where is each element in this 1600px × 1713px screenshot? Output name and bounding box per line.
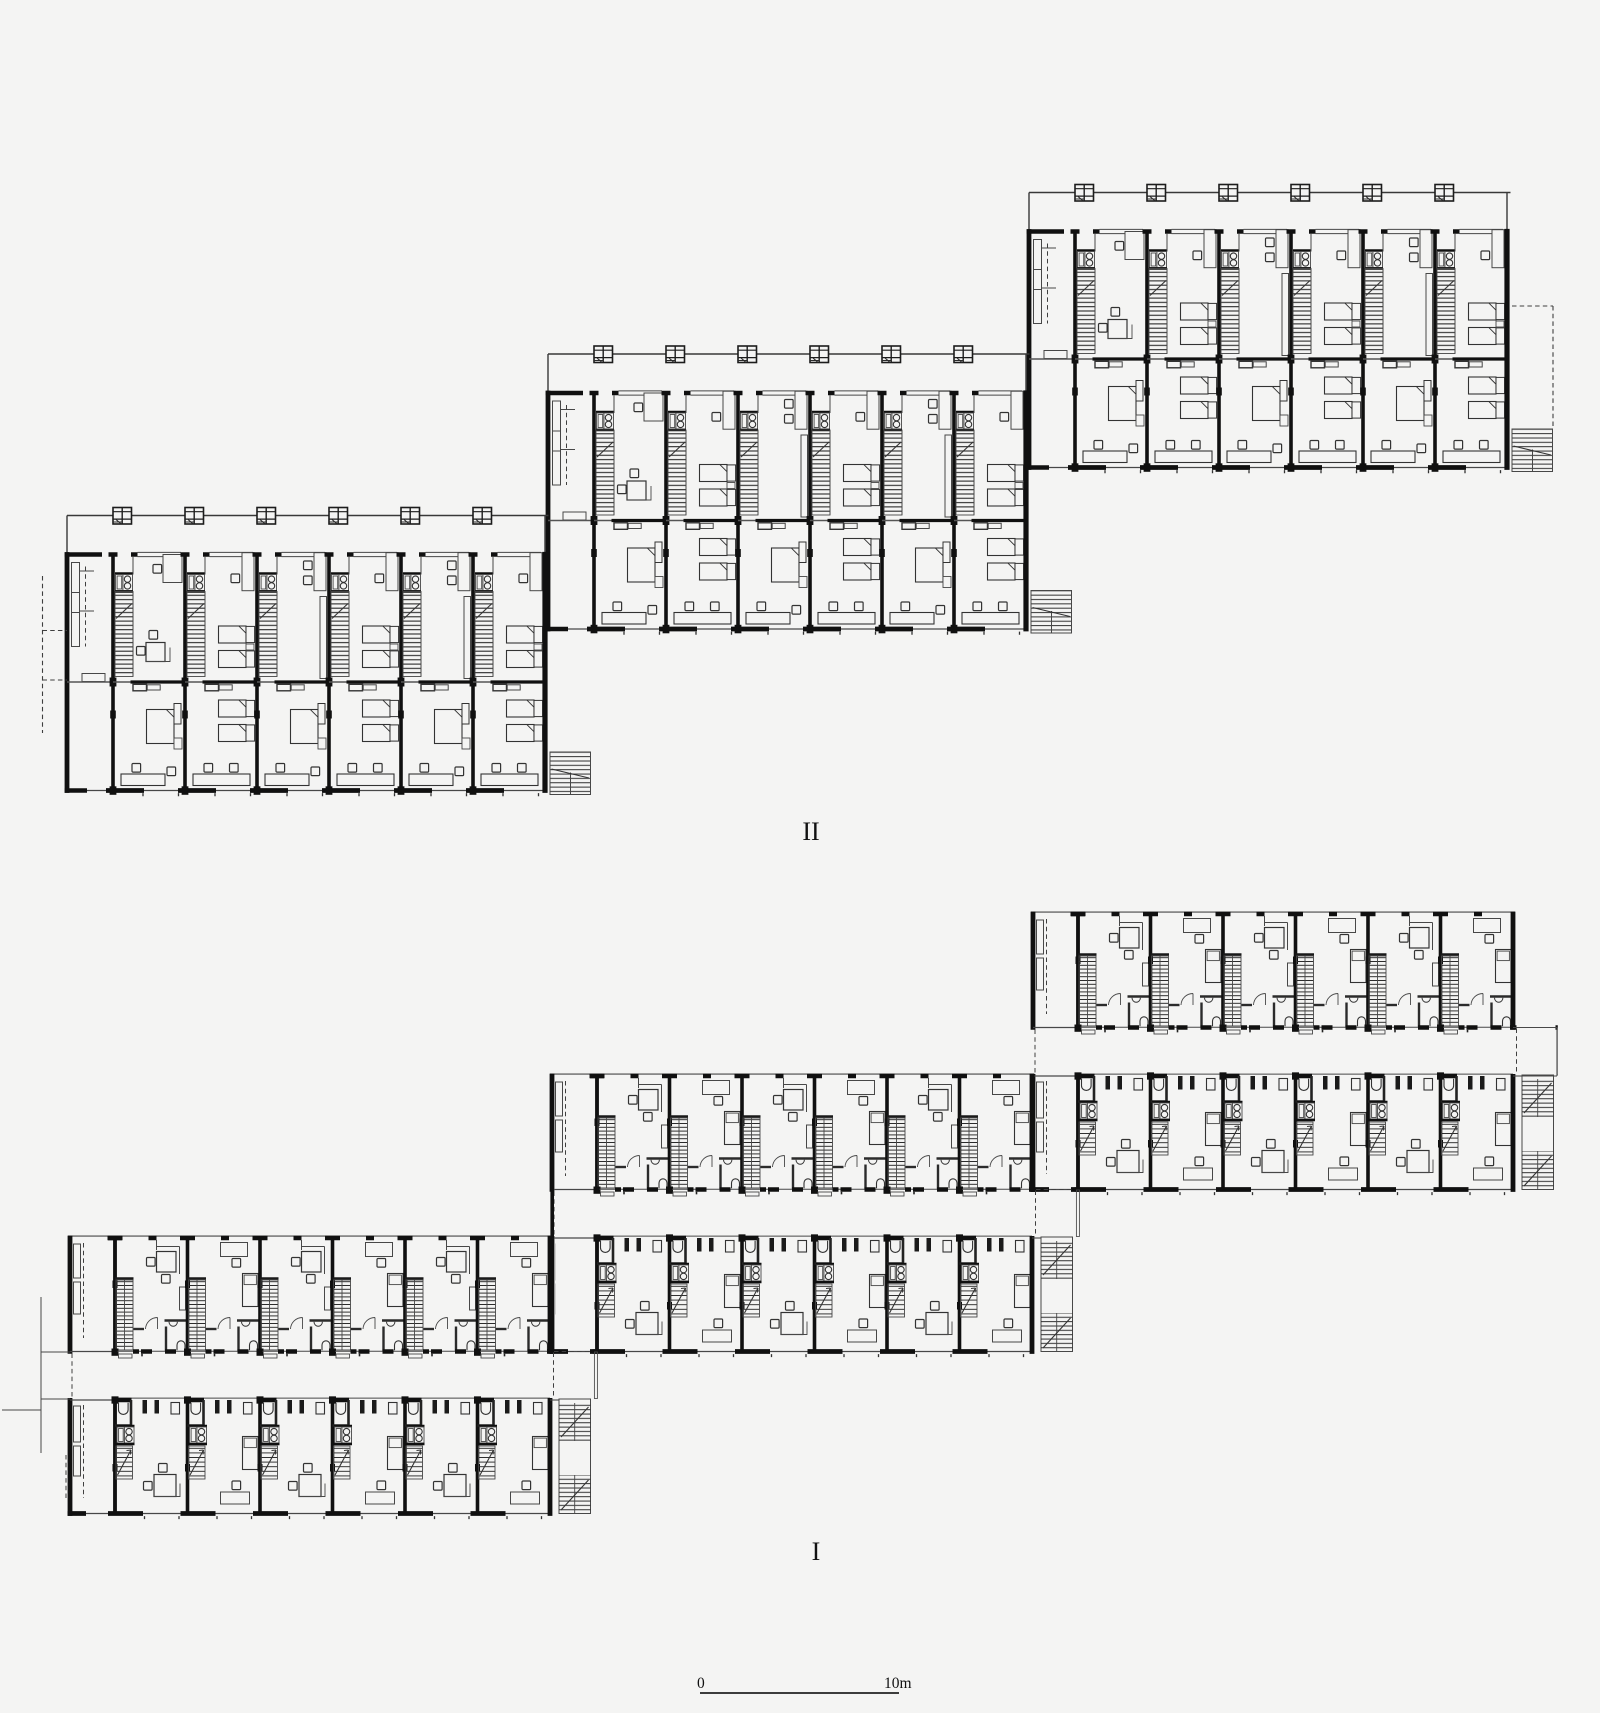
svg-text:II: II <box>802 817 819 846</box>
svg-text:0: 0 <box>697 1675 705 1692</box>
svg-text:I: I <box>812 1537 821 1566</box>
svg-text:10m: 10m <box>884 1675 912 1692</box>
